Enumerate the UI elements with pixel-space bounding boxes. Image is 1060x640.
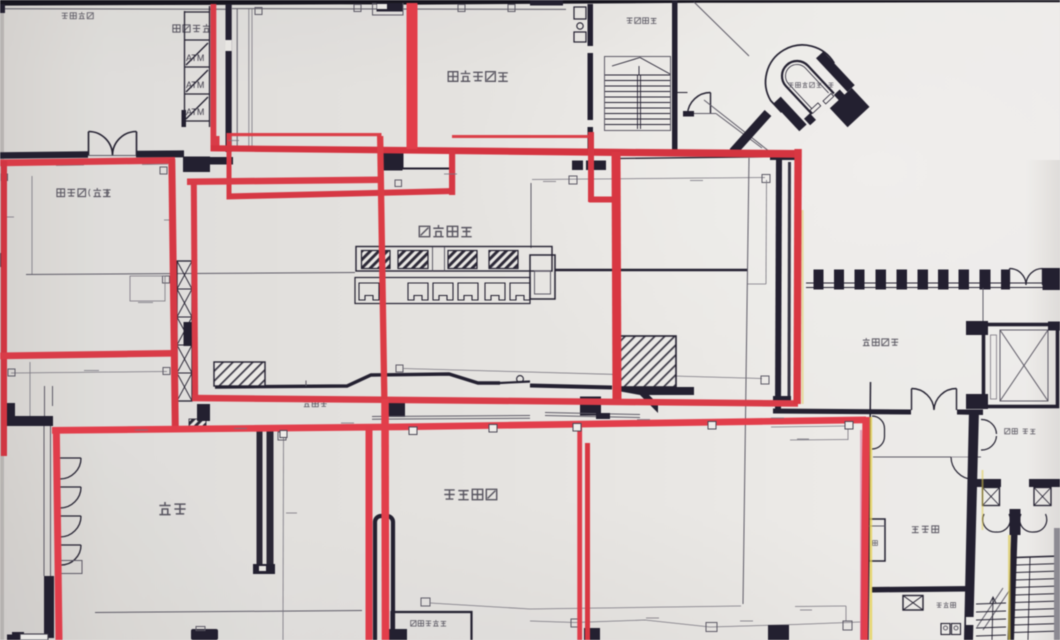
svg-text:ATM: ATM: [186, 80, 204, 90]
svg-text:ATM: ATM: [186, 53, 204, 63]
svg-text:ATM: ATM: [186, 107, 204, 117]
